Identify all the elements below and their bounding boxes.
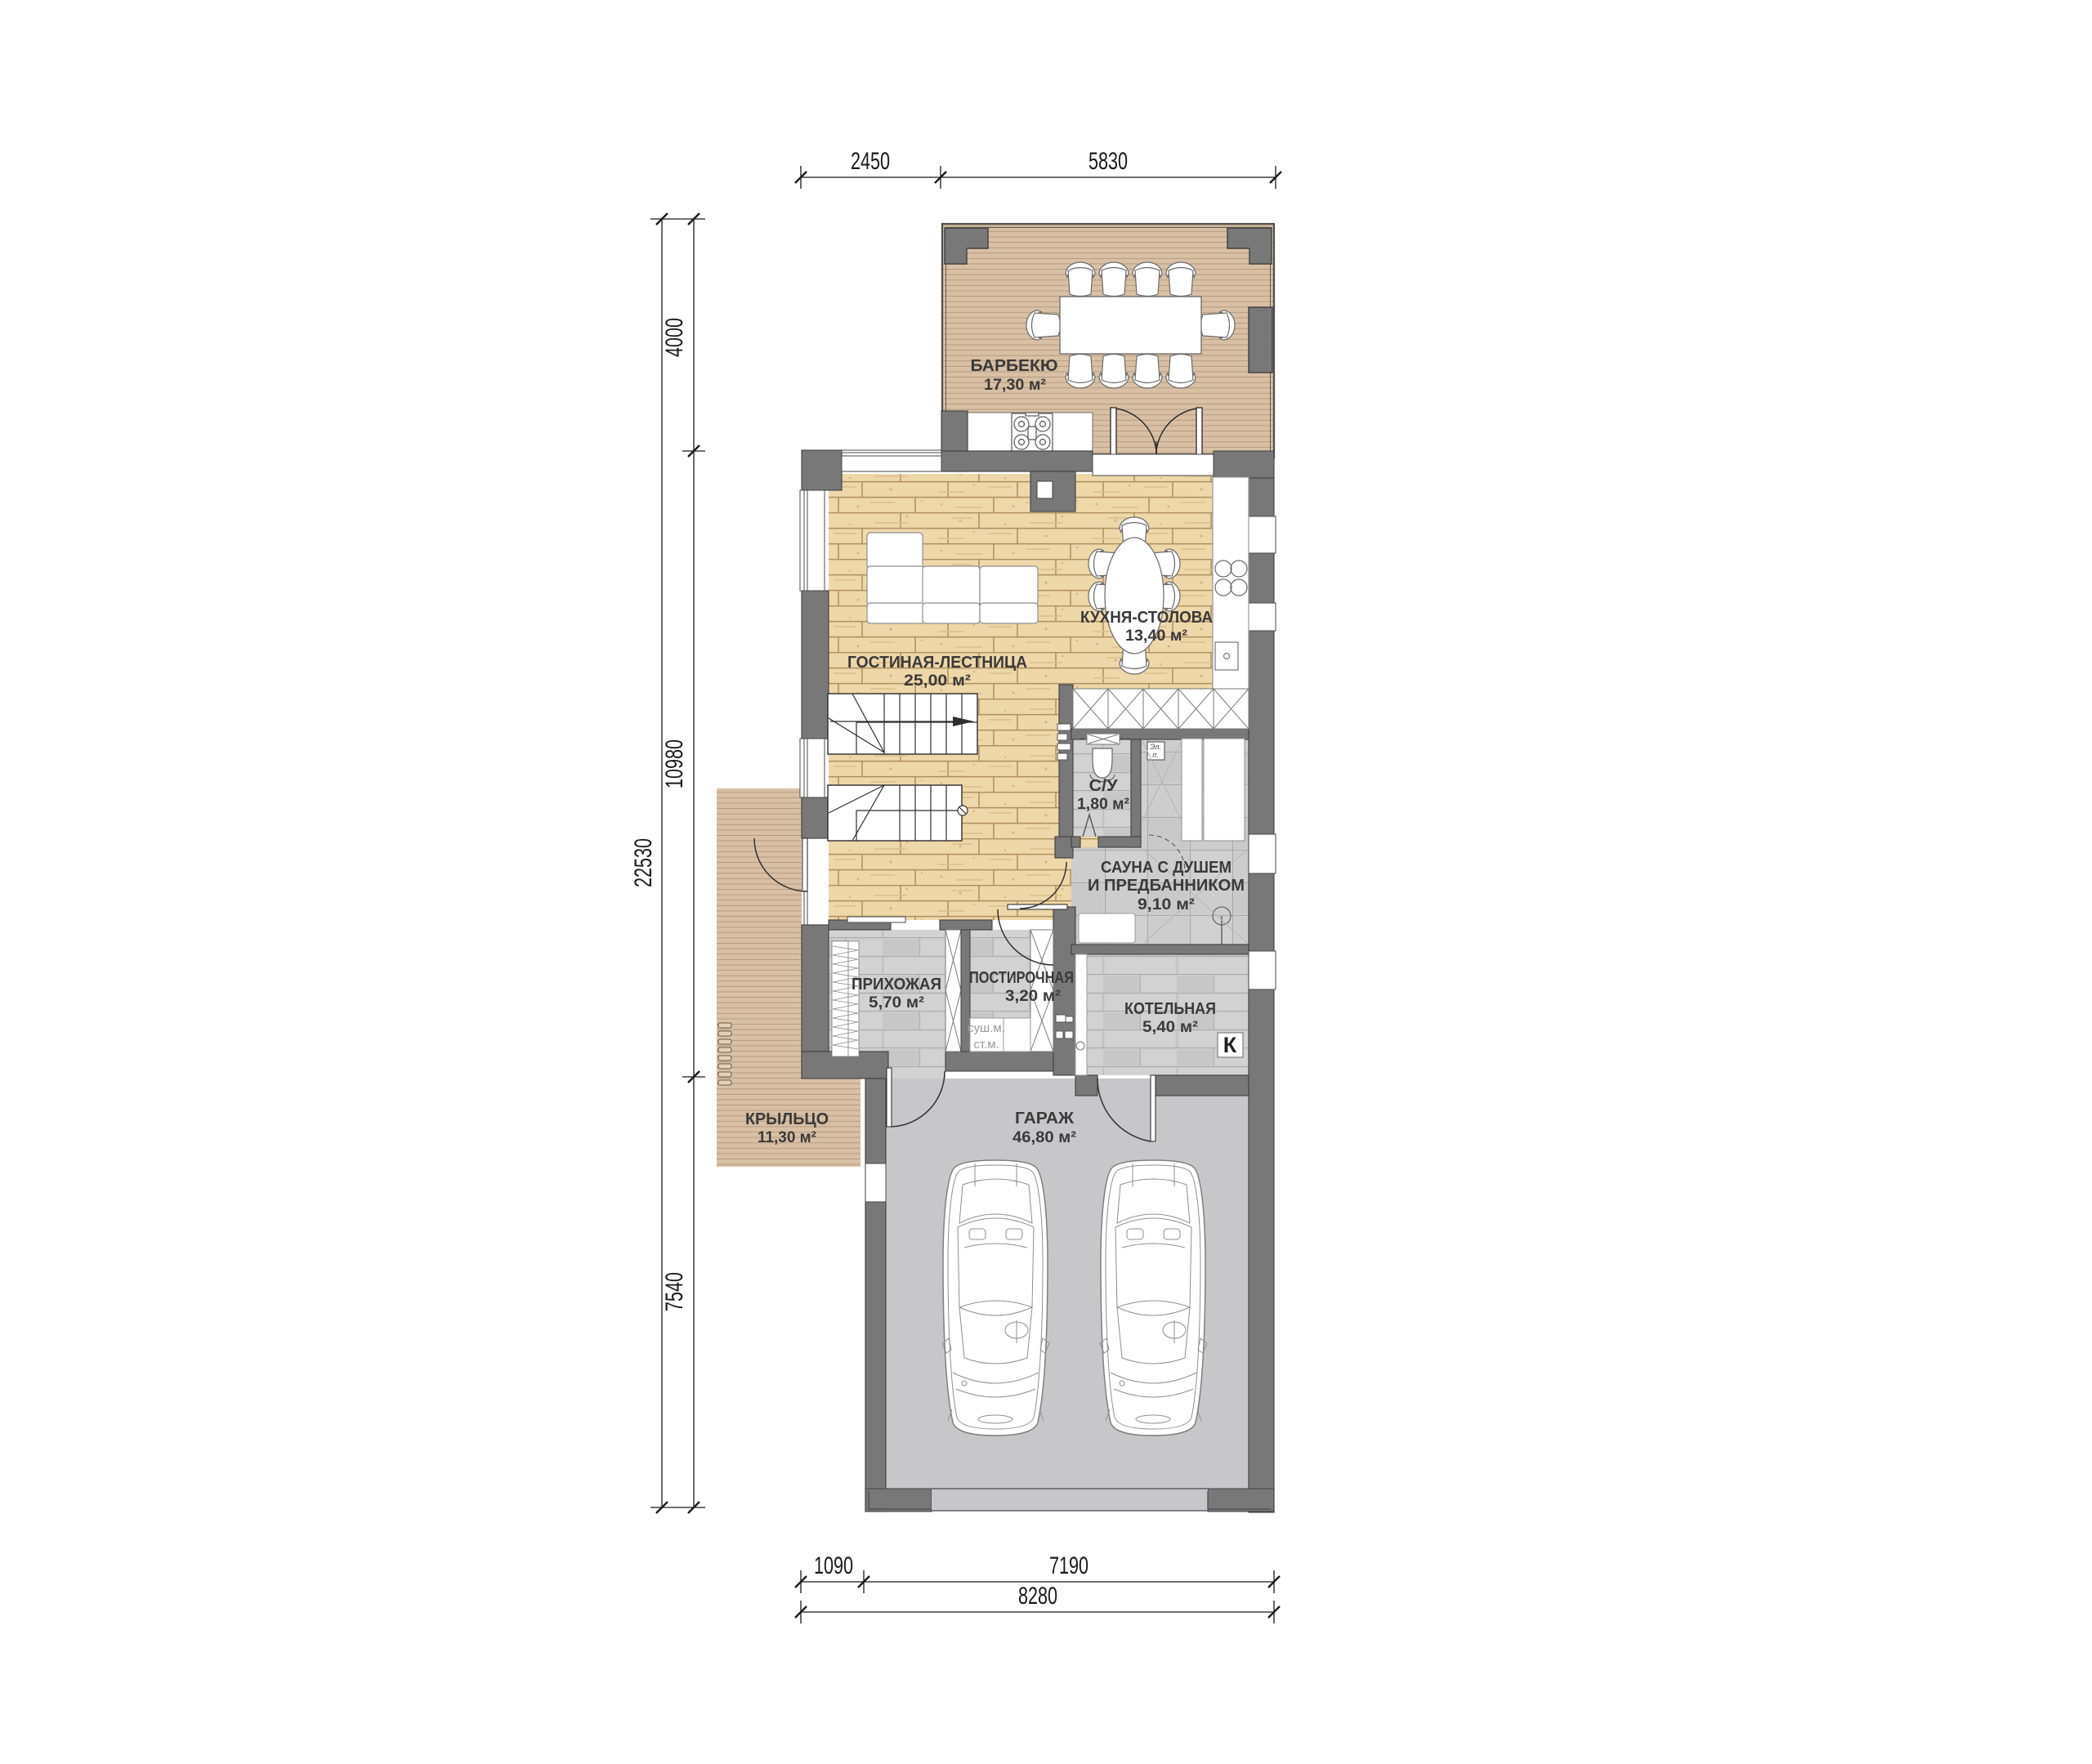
svg-text:22530: 22530: [630, 838, 657, 887]
svg-text:ГОСТИНАЯ-ЛЕСТНИЦА: ГОСТИНАЯ-ЛЕСТНИЦА: [847, 654, 1027, 672]
svg-text:БАРБЕКЮ: БАРБЕКЮ: [971, 357, 1058, 375]
svg-text:ст.м.: ст.м.: [973, 1038, 999, 1052]
svg-text:ПРИХОЖАЯ: ПРИХОЖАЯ: [852, 976, 941, 994]
svg-text:3,20 м²: 3,20 м²: [1005, 988, 1061, 1005]
svg-text:5,40 м²: 5,40 м²: [1142, 1019, 1198, 1036]
svg-text:САУНА С ДУШЕМ: САУНА С ДУШЕМ: [1101, 859, 1232, 877]
svg-text:5830: 5830: [1088, 148, 1128, 175]
svg-text:КОТЕЛЬНАЯ: КОТЕЛЬНАЯ: [1124, 1000, 1216, 1018]
svg-text:С/У: С/У: [1089, 777, 1119, 795]
svg-text:К: К: [1223, 1033, 1237, 1057]
svg-text:46,80 м²: 46,80 м²: [1012, 1129, 1076, 1146]
svg-text:1,80 м²: 1,80 м²: [1077, 796, 1129, 813]
svg-text:ГАРАЖ: ГАРАЖ: [1015, 1110, 1075, 1128]
svg-text:9,10 м²: 9,10 м²: [1138, 896, 1195, 913]
svg-text:11,30 м²: 11,30 м²: [758, 1129, 816, 1146]
svg-text:КРЫЛЬЦО: КРЫЛЬЦО: [745, 1110, 829, 1128]
svg-text:ПОСТИРОЧНАЯ: ПОСТИРОЧНАЯ: [969, 969, 1074, 987]
svg-text:п.: п.: [1152, 751, 1158, 759]
svg-text:1090: 1090: [814, 1552, 853, 1579]
svg-text:4000: 4000: [661, 318, 688, 357]
svg-text:8280: 8280: [1018, 1583, 1057, 1610]
svg-text:13,40 м²: 13,40 м²: [1125, 627, 1187, 645]
svg-text:суш.м.: суш.м.: [968, 1021, 1005, 1035]
svg-text:5,70 м²: 5,70 м²: [869, 994, 924, 1012]
svg-text:25,00 м²: 25,00 м²: [904, 672, 971, 690]
svg-text:2450: 2450: [851, 148, 890, 175]
svg-text:7540: 7540: [661, 1272, 688, 1311]
svg-text:Эл.: Эл.: [1150, 743, 1161, 751]
svg-text:7190: 7190: [1049, 1552, 1088, 1579]
svg-text:КУХНЯ-СТОЛОВА: КУХНЯ-СТОЛОВА: [1080, 609, 1213, 627]
svg-text:17,30 м²: 17,30 м²: [984, 377, 1046, 394]
svg-text:И ПРЕДБАННИКОМ: И ПРЕДБАННИКОМ: [1088, 877, 1245, 895]
svg-text:10980: 10980: [661, 739, 688, 788]
